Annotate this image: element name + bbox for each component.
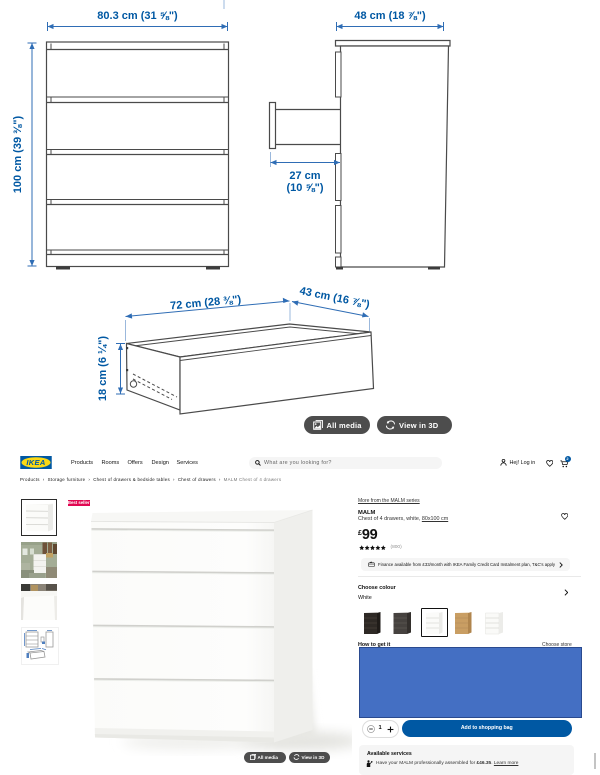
svg-text:27 cm: 27 cm (289, 170, 320, 182)
svg-text:(10 ⅝"): (10 ⅝") (286, 182, 323, 194)
svg-text:18 cm (6 ¼"): 18 cm (6 ¼") (97, 336, 109, 401)
svg-text:IKEA: IKEA (26, 458, 45, 467)
svg-text:48 cm (18 ⅞"): 48 cm (18 ⅞") (354, 10, 426, 22)
svg-text:100 cm (39 ⅜"): 100 cm (39 ⅜") (12, 115, 24, 193)
svg-text:72 cm (28 ⅜"): 72 cm (28 ⅜") (170, 294, 242, 313)
svg-text:80.3 cm (31 ⅝"): 80.3 cm (31 ⅝") (97, 10, 178, 22)
svg-text:43 cm (16 ⅞"): 43 cm (16 ⅞") (298, 285, 371, 311)
